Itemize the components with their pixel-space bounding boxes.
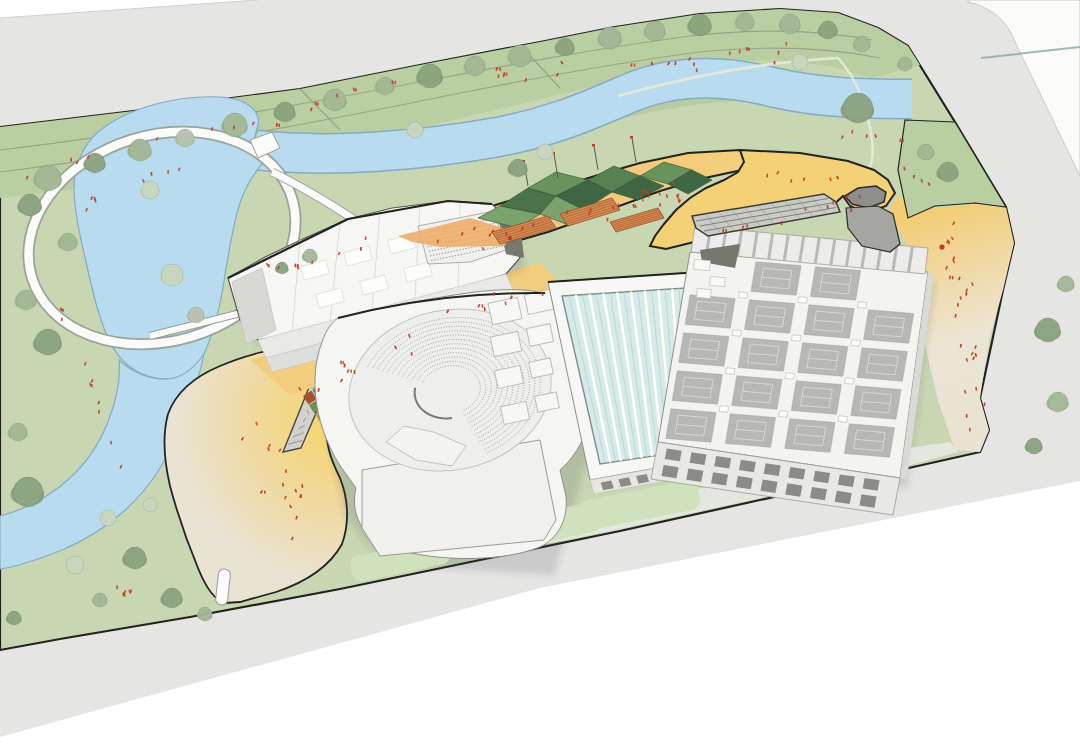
tree-canopy	[198, 607, 212, 621]
stair-core	[798, 297, 808, 303]
person	[394, 81, 396, 84]
tree-canopy	[509, 45, 531, 67]
tree-canopy	[599, 27, 621, 49]
tree-canopy	[176, 129, 194, 147]
person	[61, 317, 63, 321]
person	[969, 428, 971, 432]
person	[965, 292, 967, 296]
tree-canopy	[223, 113, 247, 137]
tree-canopy	[537, 144, 553, 160]
facade-bay	[662, 465, 679, 478]
tree-canopy	[275, 102, 295, 122]
tree-canopy	[188, 307, 204, 323]
tree-canopy	[1026, 438, 1042, 454]
tree-canopy	[161, 264, 183, 286]
stair-core	[785, 373, 795, 379]
facade-bay	[714, 456, 731, 469]
person	[94, 197, 96, 200]
person	[91, 384, 93, 387]
person	[766, 174, 768, 178]
stair-core	[791, 335, 801, 341]
tree-canopy	[143, 498, 157, 512]
tree-canopy	[1058, 276, 1074, 292]
stair-core	[857, 302, 867, 308]
tree-canopy	[129, 139, 151, 161]
tree-canopy	[66, 556, 84, 574]
person	[832, 201, 834, 205]
tree-canopy	[19, 194, 41, 216]
person	[360, 247, 362, 251]
person	[340, 360, 342, 364]
tree-canopy	[689, 14, 711, 36]
person	[729, 51, 731, 55]
tree-canopy	[376, 77, 394, 95]
tree-canopy	[16, 290, 36, 310]
tree-canopy	[141, 181, 159, 199]
facade-bay	[736, 476, 753, 489]
tree-canopy	[1036, 318, 1060, 342]
person	[70, 158, 72, 162]
person	[634, 63, 636, 66]
stair-core	[738, 292, 748, 298]
tree-canopy	[35, 329, 61, 355]
person	[590, 208, 592, 212]
person	[835, 201, 837, 204]
stair-core	[845, 378, 855, 384]
flag	[592, 144, 595, 146]
person	[482, 304, 484, 307]
tree-canopy	[918, 144, 934, 160]
flag	[630, 136, 633, 138]
person	[648, 194, 650, 198]
person	[746, 224, 748, 228]
facade-bay	[739, 460, 756, 473]
stair-core	[719, 406, 729, 412]
facade-bay	[859, 494, 876, 507]
tree-canopy	[9, 423, 27, 441]
tree-canopy	[35, 165, 61, 191]
person	[966, 414, 968, 418]
tree-canopy	[843, 93, 873, 123]
tree-canopy	[7, 611, 21, 625]
tree-canopy	[1048, 392, 1068, 412]
stair-core	[726, 368, 736, 374]
stair-core	[838, 416, 848, 422]
person	[285, 469, 287, 473]
person	[365, 236, 367, 240]
person	[278, 124, 280, 127]
site-plan-rendering	[0, 0, 1080, 746]
tree-canopy	[736, 13, 754, 31]
tree-canopy	[124, 547, 146, 569]
tree-canopy	[93, 593, 107, 607]
tree-canopy	[407, 122, 423, 138]
person	[317, 102, 319, 105]
facade-bay	[813, 471, 830, 484]
tree-canopy	[898, 57, 912, 71]
facade-bay	[785, 483, 802, 496]
tree-canopy	[792, 54, 808, 70]
stair-core	[732, 330, 742, 336]
tree-canopy	[100, 510, 116, 526]
theater-building	[315, 290, 598, 559]
person	[790, 179, 792, 183]
person	[497, 74, 499, 78]
tree-canopy	[819, 21, 837, 39]
facade-bay	[760, 480, 777, 493]
person	[785, 42, 787, 46]
person	[167, 170, 169, 174]
person	[62, 308, 64, 311]
facade-bay	[835, 491, 852, 504]
facade-bay	[788, 467, 805, 480]
site-plan-illustration	[0, 0, 1080, 746]
person	[506, 73, 508, 76]
tree-canopy	[324, 89, 346, 111]
person	[957, 303, 959, 307]
tree-canopy	[303, 249, 317, 263]
facade-bay	[838, 474, 855, 487]
person	[805, 207, 807, 211]
person	[647, 189, 649, 192]
person	[355, 88, 357, 91]
person	[774, 61, 776, 65]
person	[902, 139, 904, 142]
facade-bay	[863, 478, 880, 491]
person	[233, 126, 235, 130]
person	[725, 229, 727, 232]
tree-canopy	[465, 56, 485, 76]
person	[499, 67, 501, 70]
person	[748, 48, 750, 51]
tree-canopy	[59, 233, 77, 251]
facade-bay	[686, 469, 703, 482]
facade-bay	[764, 463, 781, 476]
person	[778, 51, 780, 55]
person	[696, 68, 698, 72]
person	[122, 592, 124, 596]
east-building	[651, 226, 934, 515]
person-group	[508, 236, 512, 240]
person	[276, 123, 278, 127]
tree-canopy	[418, 64, 442, 88]
facade-bay	[810, 487, 827, 500]
person	[505, 232, 507, 236]
person	[607, 218, 609, 222]
stair-core	[779, 411, 789, 417]
tree-canopy	[645, 21, 665, 41]
facade-bay	[665, 449, 682, 462]
person	[781, 221, 783, 225]
person	[294, 263, 296, 267]
facade-bay	[689, 452, 706, 465]
tree-canopy	[162, 588, 182, 608]
person	[268, 264, 270, 267]
person	[342, 361, 344, 364]
facade-bay	[711, 472, 728, 485]
tree-canopy	[13, 477, 43, 507]
person	[264, 490, 266, 493]
person-group	[939, 244, 944, 249]
person	[659, 203, 661, 207]
tree-canopy	[780, 14, 800, 34]
tree-canopy	[938, 162, 958, 182]
tree-canopy	[509, 159, 527, 177]
tree-canopy	[556, 38, 574, 56]
person	[350, 370, 352, 373]
person	[952, 276, 954, 279]
stair-core	[851, 340, 861, 346]
tree-canopy	[854, 36, 870, 52]
